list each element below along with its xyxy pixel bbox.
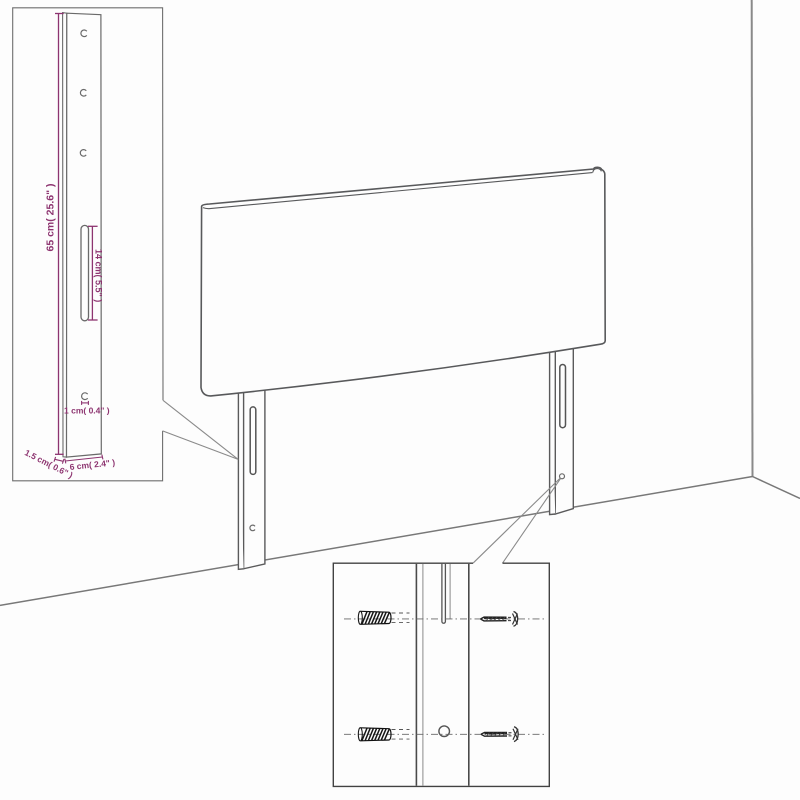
svg-text:1 cm( 0.4" ): 1 cm( 0.4" ) [64, 406, 110, 416]
svg-text:65 cm( 25.6" ): 65 cm( 25.6" ) [45, 183, 57, 251]
svg-text:14 cm( 5.5" ): 14 cm( 5.5" ) [94, 249, 104, 302]
